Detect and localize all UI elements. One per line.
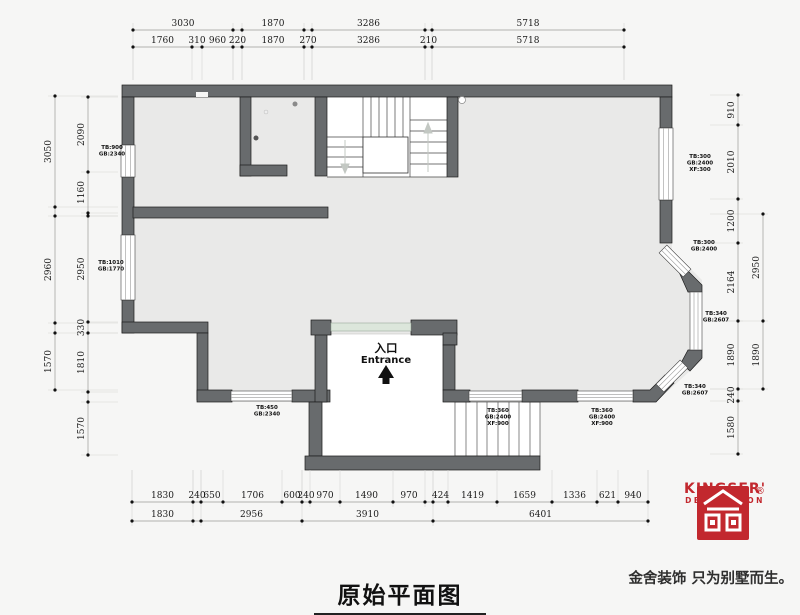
staircase (327, 97, 447, 177)
window-tag: GB:2400 (589, 415, 615, 421)
dimension-label: 210 (420, 36, 437, 46)
window-tag: GB:2340 (99, 152, 125, 158)
dimension-label: 1490 (355, 491, 378, 501)
stair-landing (363, 137, 408, 173)
drain-dot (264, 110, 268, 114)
dimension-label: 424 (432, 491, 449, 501)
door-pivot-dot (459, 97, 466, 104)
dimension-label: 970 (316, 491, 333, 501)
window-tag: TB:450 (256, 405, 278, 411)
dimension-label: 220 (229, 36, 246, 46)
window-tag: GB:2400 (687, 161, 713, 167)
dimension-label: 2164 (727, 270, 737, 293)
window-tag: XF:900 (487, 421, 509, 427)
dimension-label: 1890 (752, 343, 762, 366)
window-bottom-2 (577, 391, 633, 401)
entrance-label-en: Entrance (361, 355, 411, 366)
dimension-label: 2090 (77, 123, 87, 146)
window-tag: TB:360 (591, 408, 613, 414)
dimension-label: 1200 (727, 209, 737, 232)
dimension-label: 1419 (461, 491, 484, 501)
dimension-label: 1336 (563, 491, 586, 501)
dimension-label: 2010 (727, 150, 737, 173)
window-tag: TB:360 (487, 408, 509, 414)
dimension-label: 2960 (44, 258, 54, 281)
window-tag: XF:300 (689, 167, 711, 173)
wall-partition (133, 207, 328, 218)
window-bay-middle (690, 292, 702, 350)
registered-mark: ® (755, 486, 765, 497)
dimension-label: 1830 (151, 510, 174, 520)
dimension-label: 1570 (44, 350, 54, 373)
dimension-label: 1659 (513, 491, 536, 501)
dimension-label: 330 (77, 319, 87, 336)
dimension-label: 1870 (262, 36, 285, 46)
dimension-label: 1706 (241, 491, 264, 501)
window-tag: GB:2607 (703, 318, 729, 324)
window-tag: TB:340 (684, 384, 706, 390)
dimension-label: 6401 (529, 510, 552, 520)
dimension-label: 3286 (357, 36, 380, 46)
entrance-label-cn: 入口 (375, 341, 398, 355)
floor-plan-page: 入口 Entrance 3030187032865718176031096022… (0, 0, 800, 615)
dimension-label: 960 (209, 36, 226, 46)
window-tag: GB:2607 (682, 391, 708, 397)
dimension-label: 5718 (517, 36, 540, 46)
dimension-label: 2956 (240, 510, 263, 520)
window-tag: TB:1010 (98, 260, 124, 266)
column-dot (293, 102, 298, 107)
column-dot (254, 136, 259, 141)
window-tag: GB:1770 (98, 267, 124, 273)
dimension-label: 1810 (77, 351, 87, 374)
wall-terrace (305, 456, 540, 470)
window-tag: TB:340 (705, 311, 727, 317)
dimension-label: 1160 (77, 181, 87, 204)
window-tag: GB:2400 (691, 247, 717, 253)
dimension-label: 1870 (262, 19, 285, 29)
dimension-label: 310 (188, 36, 205, 46)
dimension-label: 650 (203, 491, 220, 501)
dimension-label: 1830 (151, 491, 174, 501)
wall-notch (196, 92, 208, 97)
window-bottom-1 (469, 391, 522, 401)
window-tag: TB:300 (689, 154, 711, 160)
company-logo: ® KINGSER' DECORATION (655, 482, 795, 505)
window-tag: GB:2340 (254, 412, 280, 418)
window-left-upper (121, 145, 135, 177)
dimension-label: 2950 (77, 257, 87, 280)
window-tag: TB:300 (693, 240, 715, 246)
dimension-label: 1760 (151, 36, 174, 46)
window-right-upper (659, 128, 673, 200)
kingser-logo-icon: ® (655, 482, 795, 546)
dimension-label: 270 (299, 36, 316, 46)
dimension-label: 1580 (727, 416, 737, 439)
entrance-door-band (331, 323, 411, 331)
window-tag: GB:2400 (485, 415, 511, 421)
dimension-label: 240 (297, 491, 314, 501)
dimension-label: 970 (400, 491, 417, 501)
dimension-label: 910 (727, 101, 737, 118)
dimension-label: 5718 (517, 19, 540, 29)
wall-room-bottom (240, 165, 287, 176)
dimension-label: 2950 (752, 256, 762, 279)
dimension-label: 621 (599, 491, 616, 501)
dimension-label: 1890 (727, 343, 737, 366)
logo-tagline: 金舍装饰 只为别墅而生。 (588, 567, 793, 588)
window-tag: XF:900 (591, 421, 613, 427)
window-bottom-left (231, 391, 292, 401)
dimension-label: 940 (624, 491, 641, 501)
dimension-label: 3050 (44, 140, 54, 163)
window-tag: TB:900 (101, 145, 123, 151)
dimension-label: 240 (727, 386, 737, 403)
wall-room-right (315, 97, 327, 176)
dimension-label: 1570 (77, 417, 87, 440)
wall-room-left (240, 97, 251, 176)
dimension-label: 3030 (172, 19, 195, 29)
dimension-label: 3286 (357, 19, 380, 29)
wall-stair-right (447, 97, 458, 177)
dimension-label: 3910 (356, 510, 379, 520)
